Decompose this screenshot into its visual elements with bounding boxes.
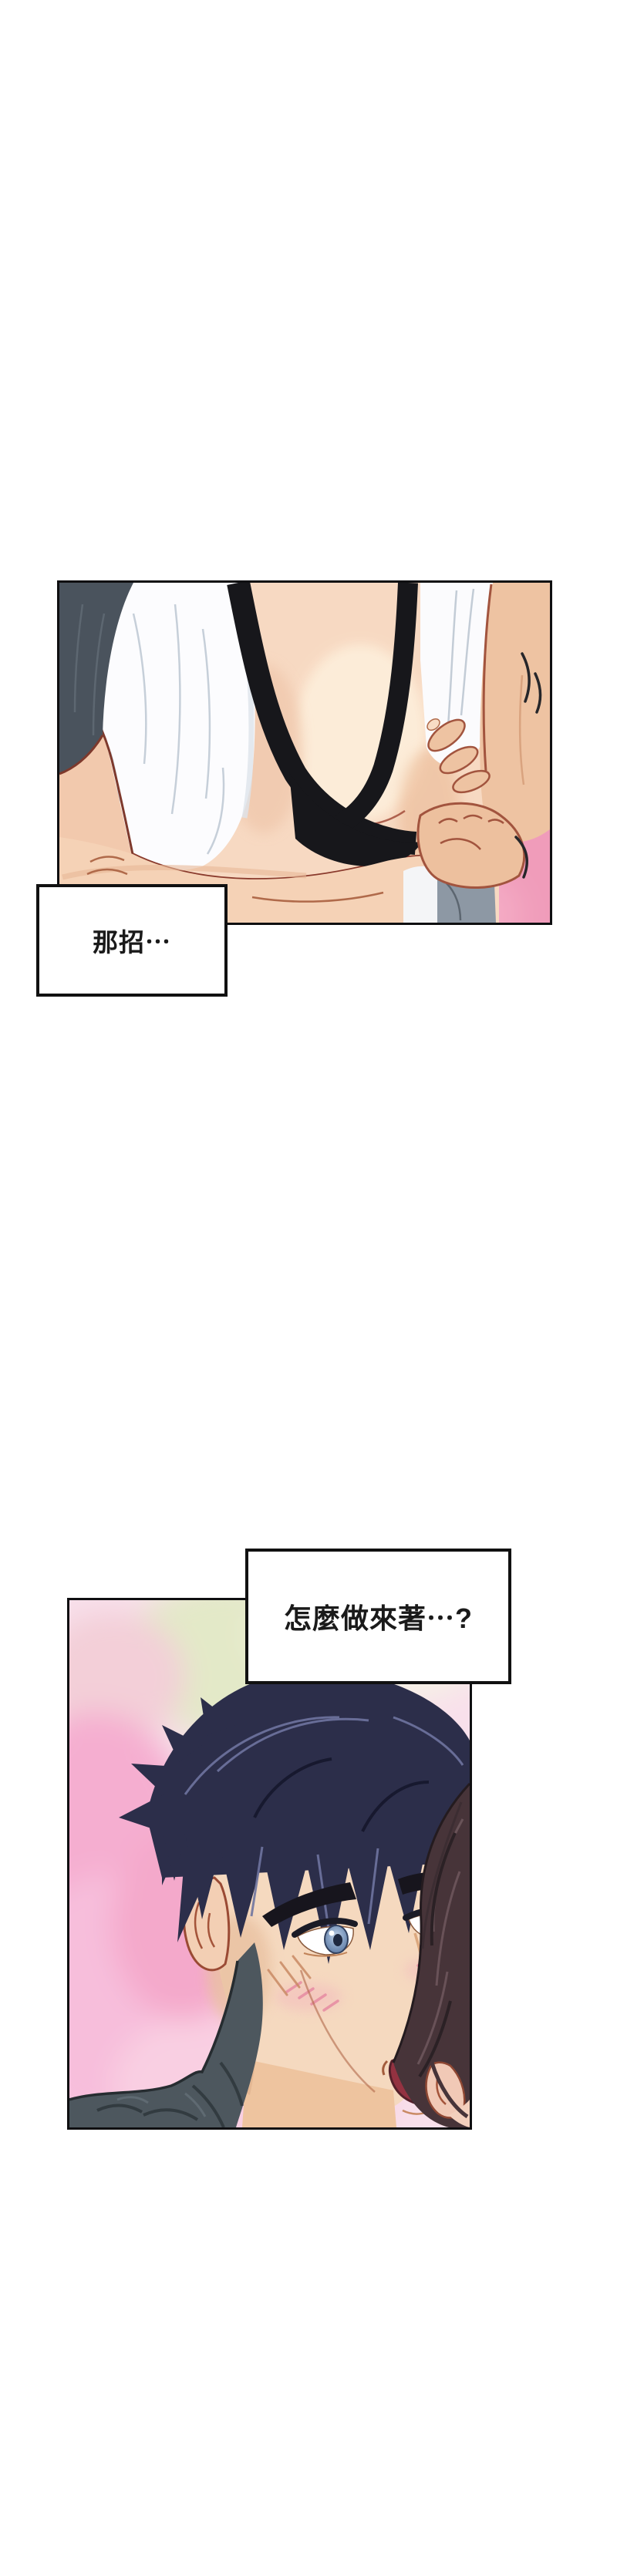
comic-panel-top — [57, 580, 552, 925]
speech-box-1: 那招⋯ — [36, 884, 228, 997]
speech-text-1: 那招⋯ — [93, 922, 171, 959]
panel-1-artwork — [59, 583, 550, 923]
his-arm — [480, 583, 550, 842]
speech-box-2: 怎麼做來著⋯? — [245, 1549, 511, 1684]
comic-page: 那招⋯ — [0, 0, 617, 2576]
speech-text-2: 怎麼做來著⋯? — [284, 1596, 473, 1636]
